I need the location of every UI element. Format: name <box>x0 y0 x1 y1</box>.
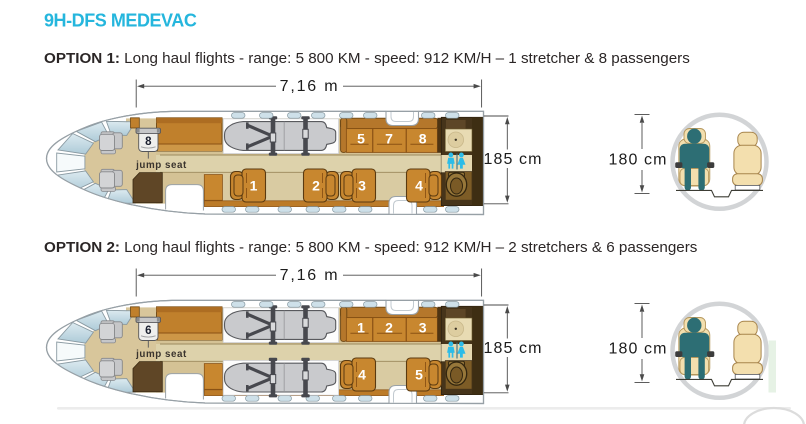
svg-text:jump seat: jump seat <box>135 160 187 171</box>
svg-text:8: 8 <box>145 136 152 148</box>
svg-text:4: 4 <box>358 367 366 383</box>
svg-text:2: 2 <box>385 320 393 336</box>
svg-text:185 cm: 185 cm <box>483 151 542 168</box>
svg-text:5: 5 <box>357 131 365 147</box>
svg-text:185 cm: 185 cm <box>483 340 542 357</box>
svg-text:7,16 m: 7,16 m <box>280 78 340 95</box>
svg-text:2: 2 <box>312 178 320 194</box>
svg-text:180 cm: 180 cm <box>608 341 667 358</box>
svg-text:9H-DFS MEDEVAC: 9H-DFS MEDEVAC <box>44 11 197 31</box>
svg-text:7: 7 <box>385 131 393 147</box>
svg-text:OPTION 2: Long haul flights -: OPTION 2: Long haul flights - range: 5 8… <box>44 239 698 256</box>
svg-text:jump seat: jump seat <box>135 349 187 360</box>
svg-text:6: 6 <box>145 325 151 337</box>
svg-text:3: 3 <box>419 320 427 336</box>
svg-text:7,16 m: 7,16 m <box>280 267 340 284</box>
svg-text:1: 1 <box>357 320 365 336</box>
svg-text:180 cm: 180 cm <box>608 152 667 169</box>
svg-text:3: 3 <box>358 178 366 194</box>
svg-text:4: 4 <box>415 178 423 194</box>
svg-text:5: 5 <box>415 367 423 383</box>
svg-text:1: 1 <box>250 178 258 194</box>
svg-text:OPTION 1: Long haul flights -: OPTION 1: Long haul flights - range: 5 8… <box>44 50 690 67</box>
svg-text:8: 8 <box>419 131 427 147</box>
